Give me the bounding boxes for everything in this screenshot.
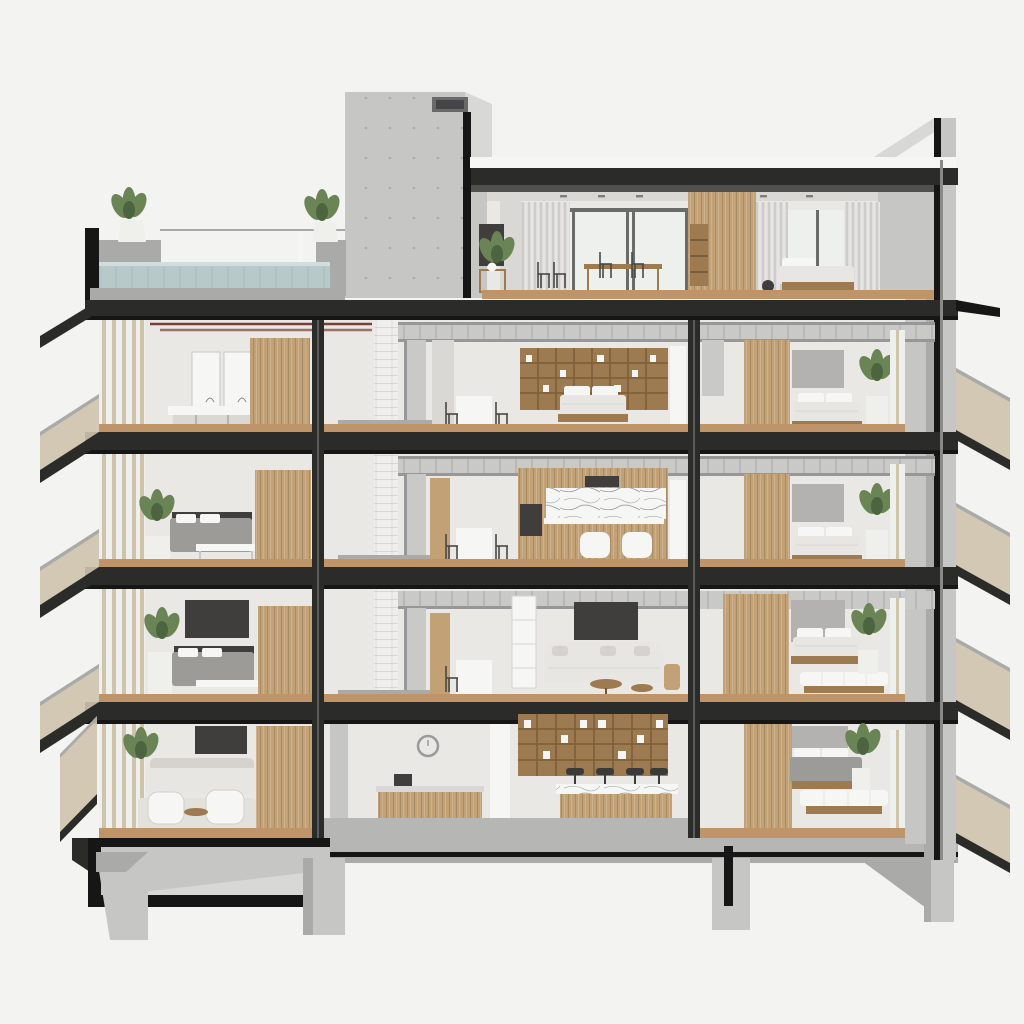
ground-floor-wood-right xyxy=(700,828,905,838)
penthouse-closet xyxy=(688,192,742,298)
floor3-floor xyxy=(99,559,905,567)
planter xyxy=(312,222,338,242)
pier-wall xyxy=(490,724,510,824)
oven xyxy=(520,504,542,536)
ground-lounge xyxy=(120,726,314,834)
core-joint xyxy=(463,112,471,298)
headboard-panel xyxy=(792,484,844,522)
floor3 xyxy=(99,454,935,567)
door xyxy=(430,613,450,697)
floor2-floor xyxy=(99,694,905,702)
futon xyxy=(800,790,888,814)
penthouse-roof-slab xyxy=(471,168,958,185)
lobby-concrete-floor xyxy=(322,818,688,838)
range-hood xyxy=(585,476,619,487)
duct-drop xyxy=(404,340,426,428)
door xyxy=(670,346,686,430)
door xyxy=(430,478,450,564)
pool-basin xyxy=(90,288,345,302)
duct-drop xyxy=(404,474,426,562)
planter xyxy=(866,396,888,426)
penthouse xyxy=(470,157,958,299)
penthouse-floor xyxy=(482,290,934,299)
headboard-panel xyxy=(792,350,844,388)
architectural-section-image xyxy=(0,0,1024,1024)
ground-floor xyxy=(99,714,905,838)
planter xyxy=(866,530,888,560)
barrel-stool xyxy=(664,664,680,690)
service-core-tower xyxy=(345,92,492,298)
futon xyxy=(800,672,888,693)
bench xyxy=(196,544,258,551)
vase xyxy=(488,263,497,272)
bed xyxy=(558,386,628,422)
section-drawing xyxy=(0,0,1024,1024)
bed xyxy=(792,393,862,429)
coffee-table xyxy=(184,808,208,816)
slab-c xyxy=(85,567,958,589)
coffee-table xyxy=(631,684,653,692)
ground-slab-edge xyxy=(330,852,958,857)
desk xyxy=(456,396,492,428)
bed xyxy=(792,527,862,563)
bed xyxy=(791,628,861,664)
closet-bookshelf xyxy=(690,224,708,286)
coffee-table xyxy=(590,679,622,689)
white-shelf xyxy=(512,596,536,688)
floor2 xyxy=(99,589,935,702)
wall-tv xyxy=(185,600,249,638)
monitor xyxy=(394,774,412,787)
mirror xyxy=(224,352,252,412)
mirror xyxy=(192,352,220,412)
duct-drop xyxy=(702,340,724,396)
wall-tv xyxy=(195,726,247,754)
sofa xyxy=(146,758,258,794)
planter xyxy=(148,652,172,694)
floor4-floor xyxy=(99,424,905,432)
planter xyxy=(852,768,870,790)
ground-floor-wood-left xyxy=(99,828,321,838)
right-wall-outer xyxy=(941,118,956,860)
floor3-window-band-left xyxy=(99,454,145,567)
penthouse-lounge xyxy=(476,200,690,298)
vanity-counter xyxy=(168,406,260,415)
floor4-window-band-left xyxy=(99,320,145,432)
planter xyxy=(118,220,146,242)
desk xyxy=(456,660,492,696)
right-wall-joint xyxy=(934,118,941,860)
door xyxy=(670,480,686,564)
roof-edge xyxy=(470,157,956,168)
slab-b xyxy=(85,432,958,454)
wall-tv xyxy=(574,602,638,640)
bench xyxy=(196,680,262,687)
island-top xyxy=(544,518,664,524)
floor4 xyxy=(99,320,935,432)
sectional-sofa xyxy=(544,642,664,682)
floor2-window-band-left xyxy=(99,589,145,702)
bar-shelving xyxy=(518,714,668,776)
planter xyxy=(858,650,878,674)
desk xyxy=(456,528,492,562)
duct-drop xyxy=(404,608,426,694)
